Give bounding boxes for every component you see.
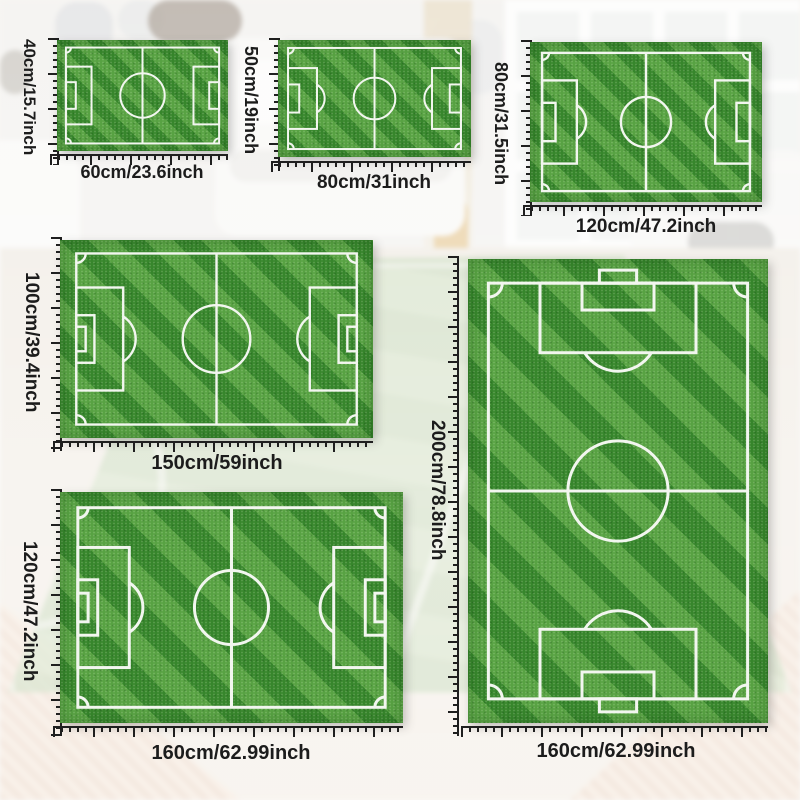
- white-haze-overlay: [0, 0, 800, 800]
- product-size-chart: 40cm/15.7inch 60cm/23.6inch 50cm/19inch …: [0, 0, 800, 800]
